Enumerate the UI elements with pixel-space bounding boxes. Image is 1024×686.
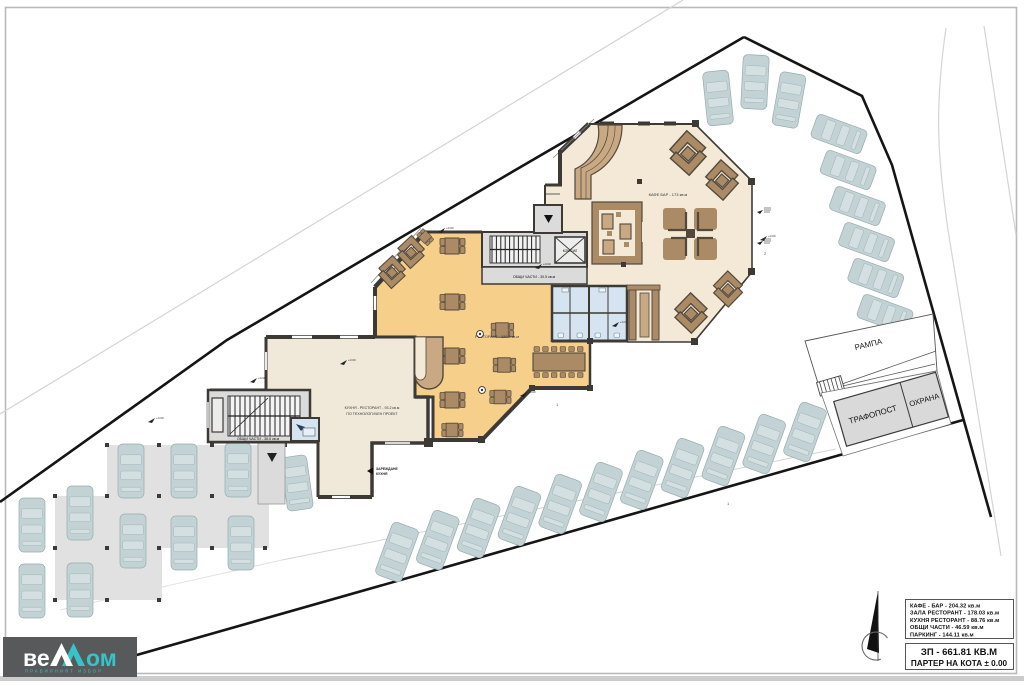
svg-text:+0.00: +0.00 bbox=[768, 234, 776, 238]
svg-text:ом: ом bbox=[86, 645, 117, 671]
svg-text:ПРАВИЛНИЯТ ИЗБОР: ПРАВИЛНИЯТ ИЗБОР bbox=[25, 669, 103, 674]
svg-text:ПАРКИНГ - 144.11 кв.м: ПАРКИНГ - 144.11 кв.м bbox=[910, 632, 974, 638]
svg-text:+0.00: +0.00 bbox=[258, 376, 266, 380]
svg-text:КАФЕ БАР - 173 кв.м: КАФЕ БАР - 173 кв.м bbox=[649, 192, 688, 197]
svg-text:КУХНЯ РЕСТОРАНТ - 88.76 кв.м: КУХНЯ РЕСТОРАНТ - 88.76 кв.м bbox=[910, 618, 999, 624]
svg-text:+0.00: +0.00 bbox=[543, 262, 551, 266]
svg-text:+0.00: +0.00 bbox=[620, 320, 628, 324]
svg-text:ве: ве bbox=[23, 645, 50, 671]
svg-text:ОБЩИ ЧАСТИ - 46.59 кв.м: ОБЩИ ЧАСТИ - 46.59 кв.м bbox=[910, 625, 984, 631]
svg-text:КАФЕ - БАР - 204.32 кв.м: КАФЕ - БАР - 204.32 кв.м bbox=[910, 604, 980, 610]
svg-text:ПАРТЕР НА КОТА ± 0.00: ПАРТЕР НА КОТА ± 0.00 bbox=[911, 659, 1008, 668]
svg-text:ОБЩИ ЧАСТИ - 36.6 кв.м: ОБЩИ ЧАСТИ - 36.6 кв.м bbox=[237, 437, 280, 441]
svg-text:ПО ТЕХНОЛОГИЧЕН ПРОЕКТ: ПО ТЕХНОЛОГИЧЕН ПРОЕКТ bbox=[346, 412, 398, 416]
svg-text:КОМСИЛ: КОМСИЛ bbox=[563, 249, 578, 253]
svg-text:+0.00: +0.00 bbox=[528, 390, 536, 394]
svg-text:+0.00: +0.00 bbox=[348, 358, 356, 362]
svg-text:ЗАЛА РЕСТОРАНТ - 178.03 кв.м: ЗАЛА РЕСТОРАНТ - 178.03 кв.м bbox=[910, 611, 999, 617]
svg-text:ЗАРЕЖДАНЕ: ЗАРЕЖДАНЕ bbox=[376, 467, 398, 471]
svg-text:ЗП - 661.81 КВ.М: ЗП - 661.81 КВ.М bbox=[921, 647, 997, 658]
svg-text:КУХНЯ: КУХНЯ bbox=[376, 472, 388, 476]
svg-text:+0.00: +0.00 bbox=[156, 416, 164, 420]
svg-text:ОБЩИ ЧАСТИ - 30.5 кв.м: ОБЩИ ЧАСТИ - 30.5 кв.м bbox=[513, 275, 556, 279]
svg-text:КУХНЯ - РЕСТОРАНТ - 93.2 кв.м: КУХНЯ - РЕСТОРАНТ - 93.2 кв.м bbox=[345, 406, 400, 410]
svg-text:+0.00: +0.00 bbox=[446, 226, 454, 230]
